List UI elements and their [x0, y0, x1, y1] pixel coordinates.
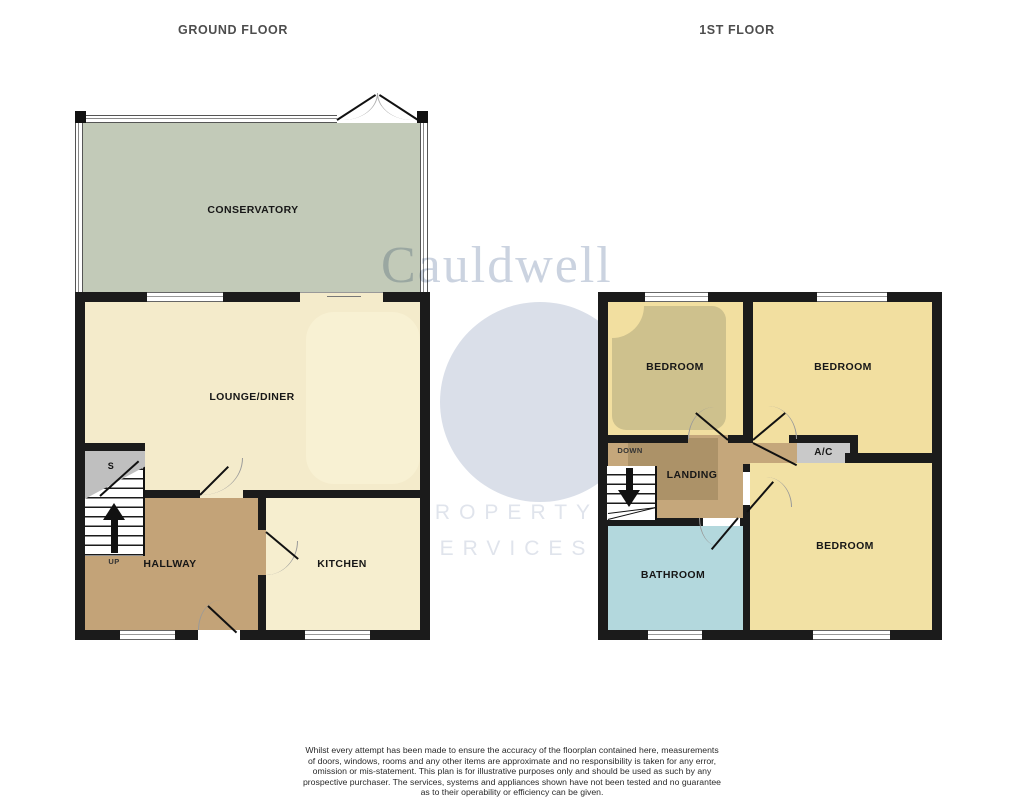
stair-down-arrow-icon	[618, 490, 640, 507]
wall	[175, 630, 198, 640]
wall	[223, 292, 300, 302]
wall	[743, 302, 753, 435]
threshold-line	[327, 296, 361, 297]
room-label-bathroom: BATHROOM	[613, 569, 733, 581]
wall	[370, 630, 430, 640]
stair-up-arrow-icon	[111, 517, 118, 553]
room-label-conservatory: CONSERVATORY	[173, 204, 333, 216]
disclaimer-line: prospective purchaser. The services, sys…	[262, 777, 762, 788]
wall	[258, 575, 266, 630]
wall	[932, 292, 942, 640]
wall	[702, 630, 813, 640]
floorplan-page: PROPERTY SERVICES GROUND FLOOR 1ST FLOOR…	[0, 0, 1024, 797]
corner-post	[417, 111, 428, 123]
room-label-airing-cupboard: A/C	[797, 447, 850, 458]
wall	[145, 490, 200, 498]
wall	[75, 292, 85, 640]
wall	[708, 292, 817, 302]
wall	[728, 435, 753, 443]
room-label-landing: LANDING	[632, 469, 752, 481]
window	[120, 630, 175, 640]
window	[648, 630, 702, 640]
ground-floor-title: GROUND FLOOR	[123, 23, 343, 37]
disclaimer-line: as to their operability or efficiency ca…	[262, 787, 762, 797]
disclaimer: Whilst every attempt has been made to en…	[262, 745, 762, 797]
room-label-bedroom-front-left: BEDROOM	[615, 361, 735, 373]
first-floor-plan: BEDROOM BEDROOM LANDING DOWN A/C BEDROOM	[598, 292, 942, 640]
wall	[608, 435, 688, 443]
watermark-brand: Cauldwell	[381, 236, 613, 295]
wall	[75, 630, 120, 640]
conservatory-glazed-wall	[75, 115, 83, 292]
disclaimer-line: Whilst every attempt has been made to en…	[262, 745, 762, 756]
window	[147, 292, 223, 302]
first-floor-title: 1ST FLOOR	[627, 23, 847, 37]
wall	[740, 518, 750, 526]
room-label-kitchen: KITCHEN	[282, 558, 402, 570]
corner-post	[75, 111, 86, 123]
room-label-bedroom-front-right: BEDROOM	[783, 361, 903, 373]
window	[645, 292, 708, 302]
window	[817, 292, 887, 302]
wall	[75, 292, 147, 302]
room-label-lounge-diner: LOUNGE/DINER	[172, 391, 332, 403]
window	[305, 630, 370, 640]
wall	[243, 490, 420, 498]
stair-direction-label: DOWN	[606, 446, 654, 455]
disclaimer-line: omission or mis-statement. This plan is …	[262, 766, 762, 777]
wall	[258, 498, 266, 530]
wall	[85, 443, 145, 451]
room-label-bedroom-rear: BEDROOM	[785, 540, 905, 552]
stair-direction-label: UP	[99, 557, 129, 566]
window	[813, 630, 890, 640]
disclaimer-line: of doors, windows, rooms and any other i…	[262, 756, 762, 767]
wall	[845, 453, 932, 463]
wall	[789, 435, 858, 443]
wall	[420, 292, 430, 640]
storage-label: S	[103, 461, 119, 471]
wall	[240, 630, 305, 640]
stair-up-arrow-icon	[103, 503, 125, 520]
conservatory-glazed-wall	[83, 115, 337, 123]
ground-floor-plan: CONSERVATORY LOUNGE/DINER HALLWAY	[75, 95, 431, 641]
